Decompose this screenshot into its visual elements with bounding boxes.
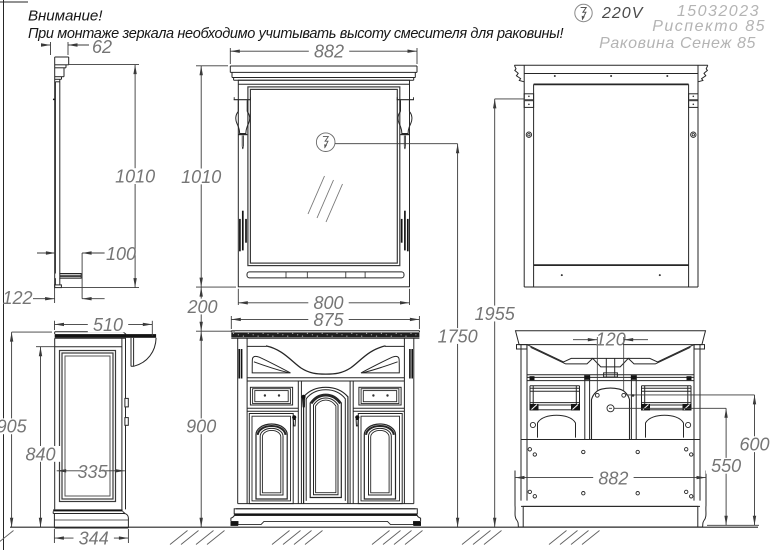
- svg-text:882: 882: [598, 468, 628, 488]
- svg-text:905: 905: [0, 417, 28, 437]
- svg-text:875: 875: [313, 310, 344, 330]
- svg-text:1010: 1010: [181, 167, 221, 187]
- svg-text:220V: 220V: [601, 5, 644, 22]
- svg-text:510: 510: [93, 315, 123, 335]
- svg-text:1955: 1955: [475, 304, 516, 324]
- svg-text:550: 550: [711, 456, 741, 476]
- svg-text:100: 100: [106, 244, 136, 264]
- svg-text:200: 200: [186, 297, 217, 317]
- svg-text:122: 122: [2, 288, 32, 308]
- svg-text:600: 600: [739, 435, 769, 455]
- svg-text:Внимание!: Внимание!: [28, 8, 103, 25]
- svg-text:62: 62: [92, 37, 112, 57]
- svg-text:900: 900: [186, 417, 216, 437]
- svg-text:120: 120: [596, 330, 626, 350]
- svg-text:882: 882: [314, 42, 344, 62]
- svg-text:1010: 1010: [115, 166, 155, 186]
- svg-text:335: 335: [77, 462, 108, 482]
- svg-text:344: 344: [79, 528, 109, 548]
- svg-text:Раковина Сенеж 85: Раковина Сенеж 85: [599, 35, 756, 52]
- svg-text:1750: 1750: [438, 326, 478, 346]
- svg-text:Риспекто 85: Риспекто 85: [652, 18, 766, 35]
- svg-text:840: 840: [25, 444, 55, 464]
